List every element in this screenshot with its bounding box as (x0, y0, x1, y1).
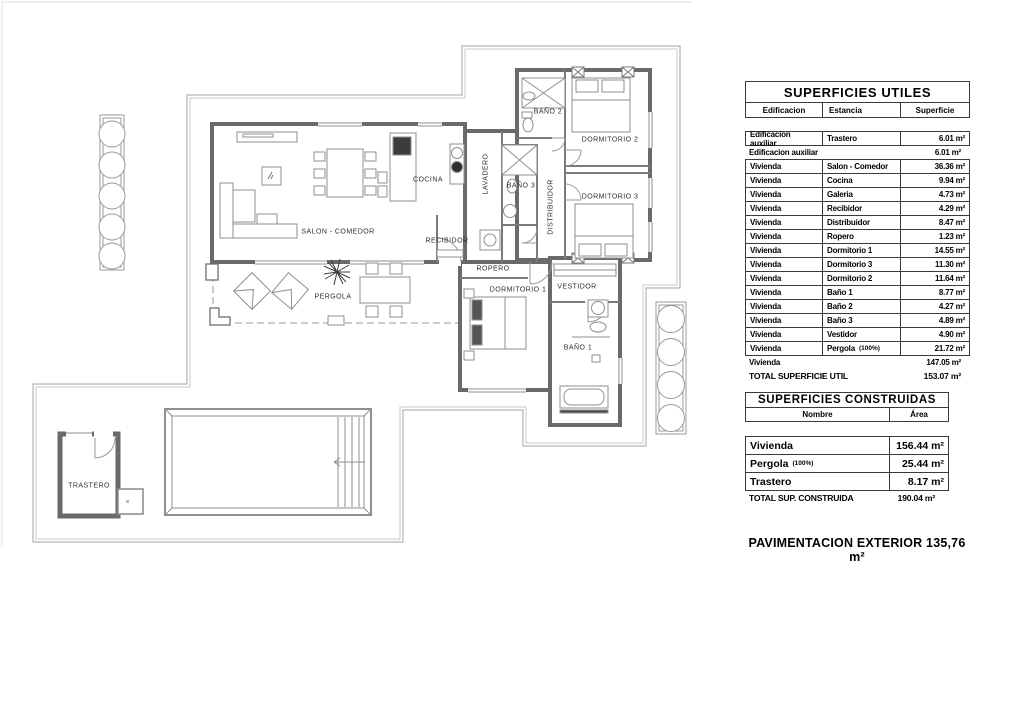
table-cell-nombre: Trastero (746, 473, 889, 490)
table-cell-estancia: Dormitorio 2 (822, 272, 901, 285)
room-label-cocina: COCINA (413, 177, 443, 184)
cell-note: (100%) (859, 345, 880, 352)
dining-table (327, 149, 363, 197)
room-label-dormitorio2: DORMITORIO 2 (582, 137, 639, 144)
table-row: ViviendaCocina9.94 m² (746, 174, 969, 188)
table-cell-estancia: Cocina (822, 174, 901, 187)
table-cell-superficie: 8.47 m² (901, 216, 969, 229)
room-label-recibidor: RECIBIDOR (426, 238, 469, 245)
table-cell-superficie: 4.73 m² (901, 188, 969, 201)
swimming-pool (165, 409, 371, 515)
table-cell-edificacion: Vivienda (746, 314, 822, 327)
table-cell-superficie: 4.90 m² (901, 328, 969, 341)
table-cell-superficie: 4.29 m² (901, 202, 969, 215)
utiles-aux-box: Edificacion auxiliarTrastero6.01 m² (745, 131, 970, 146)
table-cell-estancia: Pergola(100%) (822, 342, 901, 355)
table-cell-edificacion: Vivienda (746, 272, 822, 285)
total-value: 153.07 m² (924, 371, 961, 381)
table-cell-superficie: 4.27 m² (901, 300, 969, 313)
table-row: ViviendaBaño 34.89 m² (746, 314, 969, 328)
table-row: ViviendaRopero1.23 m² (746, 230, 969, 244)
cell-note: (100%) (793, 460, 814, 467)
subtotal-label: Vivienda (749, 358, 780, 367)
lounge-chair (234, 273, 271, 310)
table-row: ViviendaDormitorio 311.30 m² (746, 258, 969, 272)
construidas-title: SUPERFICIES CONSTRUIDAS (745, 392, 949, 408)
table-cell-estancia: Baño 2 (822, 300, 901, 313)
table-row: Pergola(100%)25.44 m² (746, 455, 948, 473)
table-cell-estancia: Salon - Comedor (822, 160, 901, 173)
table-cell-nombre: Pergola(100%) (746, 455, 889, 472)
column-header: Área (889, 408, 948, 421)
table-cell-edificacion: Vivienda (746, 342, 822, 355)
room-label-distribuidor: DISTRIBUIDOR (548, 179, 555, 235)
pergola-furniture (234, 259, 410, 317)
sink (452, 148, 463, 159)
table-cell-edificacion: Vivienda (746, 328, 822, 341)
room-label-dormitorio1: DORMITORIO 1 (490, 287, 547, 294)
table-cell-superficie: 36.36 m² (901, 160, 969, 173)
table-row: ViviendaDistribuidor8.47 m² (746, 216, 969, 230)
subtotal-value: 6.01 m² (935, 148, 961, 157)
table-cell-estancia: Trastero (822, 132, 901, 145)
utiles-vivienda-subtotal: Vivienda 147.05 m² (745, 356, 970, 369)
room-label-trastero: TRASTERO (68, 483, 110, 490)
room-label-ropero: ROPERO (476, 266, 509, 273)
construidas-total-row: TOTAL SUP. CONSTRUIDA 190.04 m² (745, 491, 949, 505)
table-cell-superficie: 4.89 m² (901, 314, 969, 327)
table-row: Edificacion auxiliarTrastero6.01 m² (746, 132, 969, 145)
table-cell-edificacion: Vivienda (746, 286, 822, 299)
trastero-building (60, 430, 143, 516)
table-cell-estancia: Baño 1 (822, 286, 901, 299)
table-row: ViviendaSalon - Comedor36.36 m² (746, 160, 969, 174)
construidas-header-row: Nombre Área (745, 407, 949, 422)
column-header: Estancia (822, 103, 901, 117)
room-label-bano1: BAÑO 1 (564, 345, 592, 352)
total-label: TOTAL SUP. CONSTRUIDA (749, 493, 854, 503)
column-header: Nombre (746, 408, 889, 421)
table-cell-superficie: 8.77 m² (901, 286, 969, 299)
table-cell-area: 8.17 m² (889, 473, 948, 490)
fireplace (262, 167, 281, 185)
table-row: ViviendaBaño 18.77 m² (746, 286, 969, 300)
table-cell-edificacion: Vivienda (746, 230, 822, 243)
outdoor-table (360, 277, 410, 303)
table-cell-superficie: 21.72 m² (901, 342, 969, 355)
table-cell-edificacion: Vivienda (746, 244, 822, 257)
table-cell-edificacion: Vivienda (746, 174, 822, 187)
table-cell-area: 25.44 m² (889, 455, 948, 472)
utiles-title: SUPERFICIES UTILES (745, 81, 970, 103)
sofa-back (220, 183, 233, 238)
lounge-chair (272, 273, 309, 310)
column-header: Superficie (901, 103, 969, 117)
toilet-bano3 (504, 205, 517, 218)
utiles-header-row: Edificacion Estancia Superficie (745, 102, 970, 118)
table-cell-edificacion: Vivienda (746, 216, 822, 229)
subtotal-value: 147.05 m² (926, 358, 961, 367)
utiles-aux-subtotal: Edificacion auxiliar 6.01 m² (745, 146, 970, 159)
pool-arrow (334, 458, 365, 466)
table-cell-edificacion: Vivienda (746, 202, 822, 215)
room-label-bano2: BAÑO 2 (534, 109, 562, 116)
table-cell-edificacion: Vivienda (746, 188, 822, 201)
table-cell-estancia: Baño 3 (822, 314, 901, 327)
table-cell-edificacion: Vivienda (746, 160, 822, 173)
table-row: Vivienda156.44 m² (746, 437, 948, 455)
toilet-bano1 (590, 322, 606, 332)
superficies-construidas-table: SUPERFICIES CONSTRUIDAS Nombre Área Vivi… (745, 392, 949, 505)
room-label-pergola: PERGOLA (315, 294, 352, 301)
total-value: 190.04 m² (898, 493, 935, 503)
table-cell-superficie: 11.30 m² (901, 258, 969, 271)
table-cell-estancia: Recibidor (822, 202, 901, 215)
subtotal-label: Edificacion auxiliar (749, 148, 818, 157)
column-header: Edificacion (746, 103, 822, 117)
table-row: ViviendaVestidor4.90 m² (746, 328, 969, 342)
table-row: ViviendaPergola(100%)21.72 m² (746, 342, 969, 355)
room-label-lavadero: LAVADERO (483, 154, 490, 195)
superficies-utiles-table: SUPERFICIES UTILES Edificacion Estancia … (745, 81, 970, 383)
table-cell-estancia: Dormitorio 1 (822, 244, 901, 257)
total-label: TOTAL SUPERFICIE UTIL (749, 371, 848, 381)
room-label-dormitorio3: DORMITORIO 3 (582, 194, 639, 201)
pavimentacion-exterior-note: PAVIMENTACION EXTERIOR 135,76 m² (740, 536, 974, 564)
table-cell-estancia: Distribuidor (822, 216, 901, 229)
table-row: ViviendaDormitorio 114.55 m² (746, 244, 969, 258)
sofa-chaise (233, 190, 255, 222)
toilet-bano2 (523, 118, 533, 132)
planter-right (656, 302, 686, 434)
table-cell-estancia: Ropero (822, 230, 901, 243)
room-label-salon-comedor: SALON - COMEDOR (301, 229, 374, 236)
table-row: ViviendaRecibidor4.29 m² (746, 202, 969, 216)
table-cell-superficie: 14.55 m² (901, 244, 969, 257)
table-cell-edificacion: Vivienda (746, 258, 822, 271)
table-cell-edificacion: Edificacion auxiliar (746, 132, 822, 145)
utiles-vivienda-box: ViviendaSalon - Comedor36.36 m²ViviendaC… (745, 159, 970, 356)
table-cell-nombre: Vivienda (746, 437, 889, 454)
table-row: Trastero8.17 m² (746, 473, 948, 490)
table-cell-estancia: Dormitorio 3 (822, 258, 901, 271)
table-cell-edificacion: Vivienda (746, 300, 822, 313)
table-row: ViviendaGaleria4.73 m² (746, 188, 969, 202)
planter-left (99, 115, 125, 270)
table-cell-superficie: 1.23 m² (901, 230, 969, 243)
table-row: ViviendaDormitorio 211.64 m² (746, 272, 969, 286)
table-cell-estancia: Galeria (822, 188, 901, 201)
construidas-box: Vivienda156.44 m²Pergola(100%)25.44 m²Tr… (745, 436, 949, 491)
sofa-seat (233, 224, 297, 238)
table-row: ViviendaBaño 24.27 m² (746, 300, 969, 314)
table-cell-estancia: Vestidor (822, 328, 901, 341)
utiles-total-row: TOTAL SUPERFICIE UTIL 153.07 m² (745, 369, 970, 383)
floorplan-page: SALON - COMEDOR COCINA RECIBIDOR LAVADER… (0, 0, 1024, 724)
cooktop (393, 137, 411, 155)
room-label-vestidor: VESTIDOR (557, 284, 596, 291)
table-cell-superficie: 9.94 m² (901, 174, 969, 187)
room-label-bano3: BAÑO 3 (507, 183, 535, 190)
table-cell-area: 156.44 m² (889, 437, 948, 454)
hall-console (437, 250, 463, 257)
table-cell-superficie: 6.01 m² (901, 132, 969, 145)
table-cell-superficie: 11.64 m² (901, 272, 969, 285)
